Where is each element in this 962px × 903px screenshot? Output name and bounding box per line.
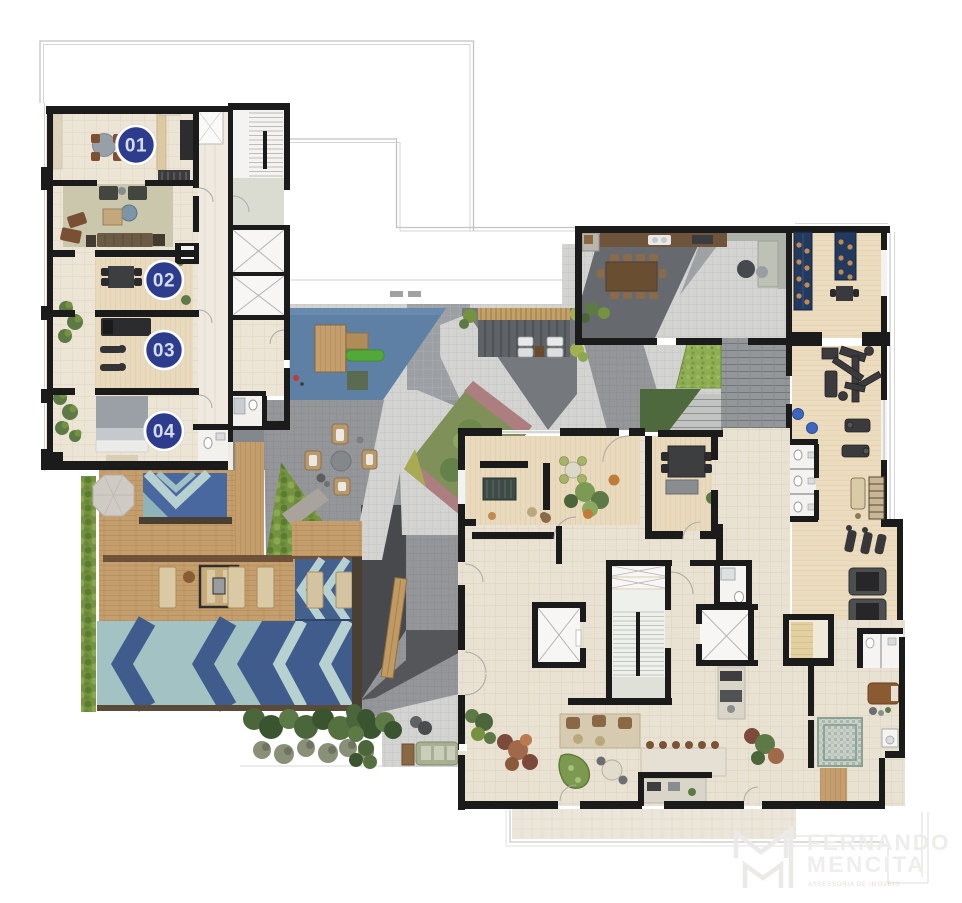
svg-text:02: 02 — [153, 271, 175, 292]
svg-text:MENCITA: MENCITA — [807, 852, 926, 877]
svg-text:01: 01 — [125, 136, 147, 157]
svg-text:03: 03 — [153, 341, 175, 362]
svg-text:04: 04 — [153, 422, 175, 443]
svg-text:ASSESSORIA DE IMOVEIS: ASSESSORIA DE IMOVEIS — [808, 882, 900, 888]
